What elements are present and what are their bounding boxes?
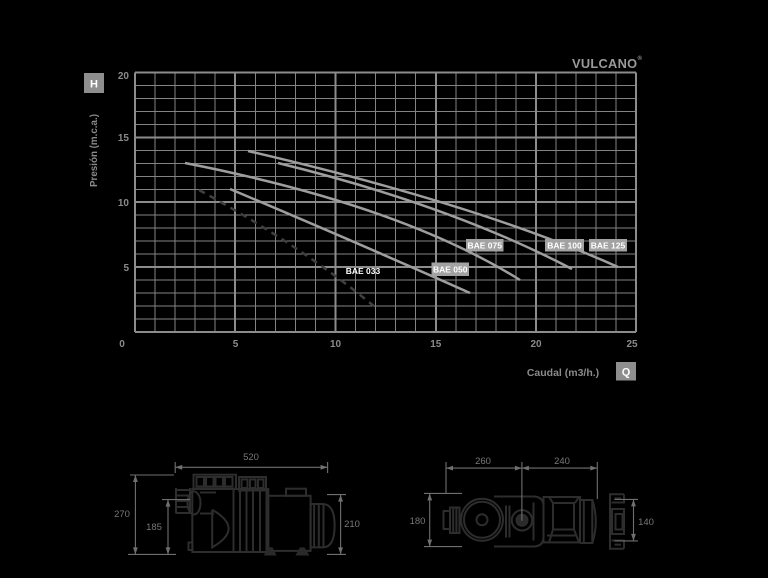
svg-text:15: 15	[430, 339, 442, 350]
svg-text:185: 185	[146, 522, 162, 533]
svg-text:270: 270	[114, 509, 130, 520]
svg-text:240: 240	[554, 456, 570, 467]
svg-text:VULCANO: VULCANO	[572, 56, 637, 71]
svg-text:210: 210	[344, 519, 360, 530]
svg-text:260: 260	[475, 456, 491, 467]
svg-text:Q: Q	[622, 367, 631, 379]
svg-text:20: 20	[118, 71, 130, 82]
svg-text:H: H	[90, 79, 98, 91]
svg-text:10: 10	[330, 339, 342, 350]
svg-text:®: ®	[638, 55, 643, 62]
svg-text:BAE 100: BAE 100	[547, 241, 582, 251]
svg-text:10: 10	[118, 198, 130, 209]
svg-text:20: 20	[530, 339, 542, 350]
svg-text:0: 0	[119, 339, 125, 350]
svg-text:140: 140	[638, 517, 654, 528]
svg-text:Caudal (m3/h.): Caudal (m3/h.)	[527, 367, 599, 379]
svg-text:25: 25	[626, 339, 638, 350]
svg-text:BAE 033: BAE 033	[346, 266, 381, 276]
svg-text:BAE 125: BAE 125	[591, 241, 626, 251]
svg-text:Presión (m.c.a.): Presión (m.c.a.)	[89, 114, 100, 187]
svg-text:5: 5	[233, 339, 239, 350]
svg-text:BAE 075: BAE 075	[467, 241, 502, 251]
svg-text:BAE 050: BAE 050	[433, 265, 468, 275]
svg-text:520: 520	[243, 452, 259, 463]
svg-text:5: 5	[123, 263, 129, 274]
svg-text:15: 15	[118, 133, 130, 144]
svg-text:180: 180	[410, 516, 426, 527]
